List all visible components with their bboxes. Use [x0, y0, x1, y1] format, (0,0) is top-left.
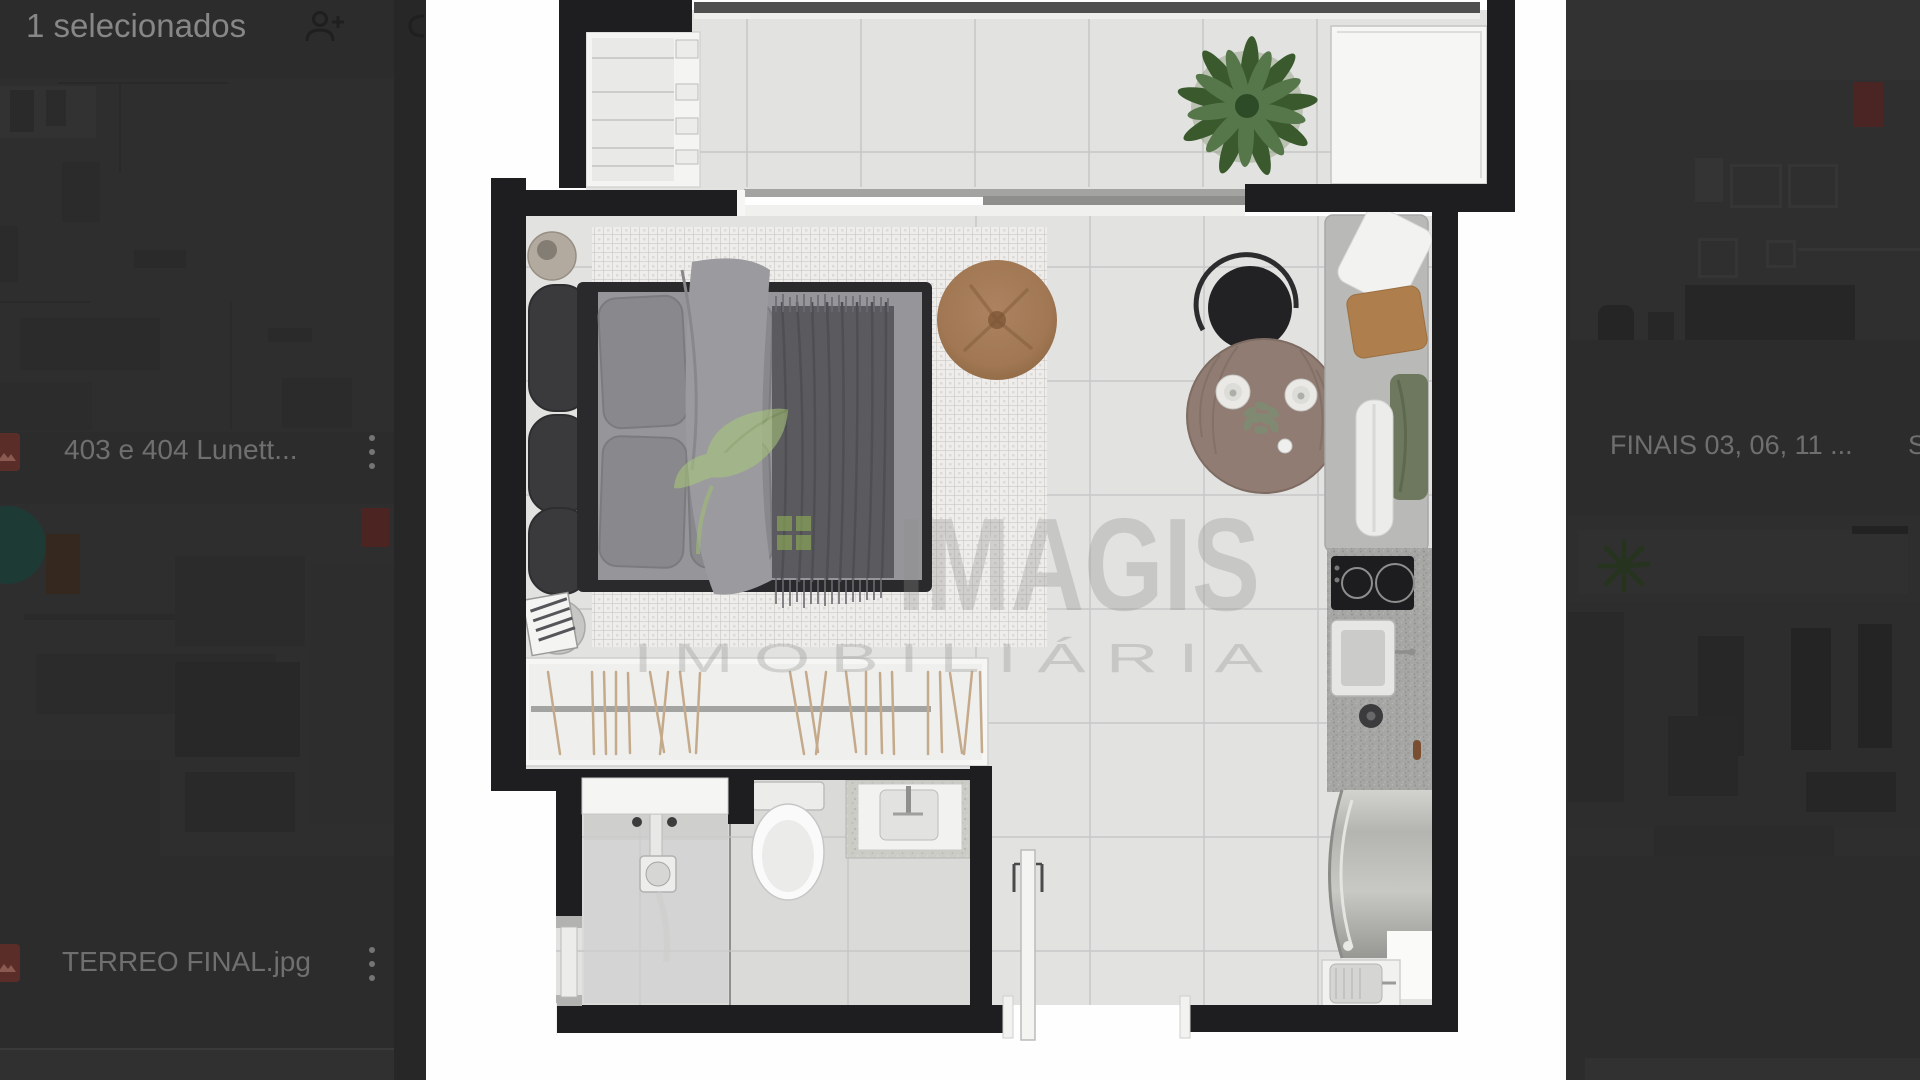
svg-text:I M O B I L I Á R I A: I M O B I L I Á R I A [633, 635, 1264, 681]
svg-text:IMAGIS: IMAGIS [897, 491, 1260, 638]
